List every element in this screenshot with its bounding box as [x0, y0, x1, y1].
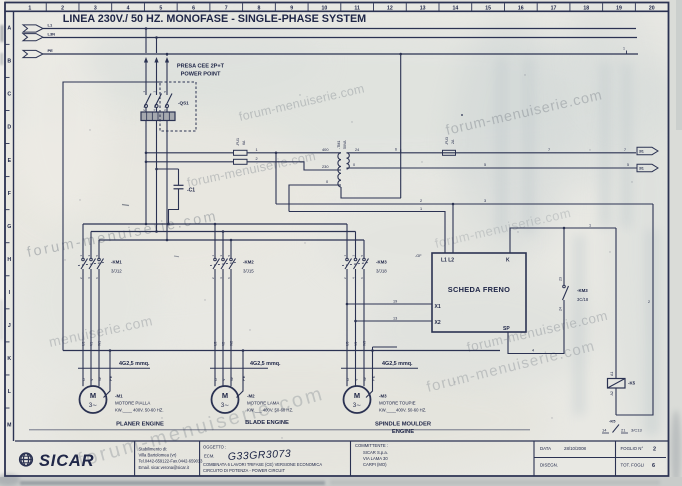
svg-text:14: 14 — [602, 428, 607, 433]
svg-text:-FU1: -FU1 — [236, 138, 240, 146]
svg-text:-FU3: -FU3 — [445, 137, 449, 145]
svg-text:2: 2 — [653, 447, 656, 453]
svg-text:SCHEDA FRENO: SCHEDA FRENO — [448, 285, 510, 294]
svg-text:POWER POINT: POWER POINT — [181, 72, 221, 78]
svg-text:6: 6 — [652, 463, 655, 469]
svg-text:U3: U3 — [346, 342, 350, 346]
svg-text:Villa Bartolomea (vr): Villa Bartolomea (vr) — [139, 453, 177, 458]
svg-text:2A: 2A — [451, 139, 455, 144]
svg-text:OGGETTO :: OGGETTO : — [203, 445, 226, 450]
svg-text:SP: SP — [503, 326, 510, 332]
svg-text:16: 16 — [518, 5, 524, 11]
svg-text:LINEA 230V./ 50 HZ. MONOFASE -: LINEA 230V./ 50 HZ. MONOFASE - SINGLE-PH… — [63, 13, 366, 25]
svg-text:W: W — [97, 377, 102, 381]
svg-text:PE: PE — [370, 375, 375, 381]
svg-text:V: V — [353, 378, 358, 381]
svg-text:PRESA CEE 2P+T: PRESA CEE 2P+T — [177, 64, 225, 70]
svg-text:G: G — [7, 224, 11, 230]
svg-text:50VA: 50VA — [343, 140, 347, 149]
svg-text:3∼: 3∼ — [89, 403, 97, 409]
svg-text:8: 8 — [258, 5, 261, 11]
svg-text:VIA LAMA 30: VIA LAMA 30 — [363, 456, 388, 461]
svg-text:L1: L1 — [48, 23, 53, 28]
svg-text:230: 230 — [322, 164, 329, 169]
svg-text:1: 1 — [256, 148, 258, 152]
svg-text:28/10/2008: 28/10/2008 — [564, 446, 587, 451]
svg-text:Tel.0442-659122-Fax.0442-65901: Tel.0442-659122-Fax.0442-659013 — [139, 459, 204, 464]
svg-text:W2: W2 — [230, 341, 234, 346]
svg-text:7: 7 — [624, 148, 626, 152]
svg-text:PE: PE — [108, 375, 113, 381]
svg-text:9: 9 — [290, 5, 293, 11]
svg-text:18: 18 — [583, 5, 589, 11]
svg-text:MOTORE TOUPIE: MOTORE TOUPIE — [379, 401, 416, 406]
svg-text:6A: 6A — [242, 140, 246, 145]
svg-text:-KM3: -KM3 — [577, 288, 588, 293]
svg-text:-GF: -GF — [415, 254, 422, 258]
svg-text:J: J — [8, 323, 11, 329]
svg-text:U: U — [345, 378, 350, 381]
svg-text:PE: PE — [48, 48, 54, 53]
svg-text:-KM3: -KM3 — [376, 260, 387, 265]
svg-text:CIRCUITO DI POTENZA - POWER CI: CIRCUITO DI POTENZA - POWER CIRCUIT — [203, 468, 286, 473]
svg-text:3: 3 — [484, 199, 486, 203]
svg-text:V2: V2 — [222, 342, 226, 346]
svg-text:2: 2 — [256, 157, 258, 161]
svg-text:2: 2 — [61, 5, 64, 11]
svg-text:C: C — [7, 92, 11, 98]
svg-text:DATA: DATA — [540, 446, 551, 451]
svg-text:1: 1 — [589, 223, 591, 227]
svg-text:19: 19 — [393, 299, 397, 303]
svg-text:W: W — [362, 377, 367, 381]
svg-text:V: V — [89, 378, 94, 381]
svg-text:M: M — [354, 391, 360, 400]
svg-text:24: 24 — [559, 307, 563, 311]
svg-text:PE: PE — [241, 375, 246, 381]
svg-text:21: 21 — [621, 428, 626, 433]
svg-text:E: E — [8, 158, 12, 164]
svg-text:3/1: 3/1 — [639, 167, 644, 171]
svg-text:V1: V1 — [90, 342, 94, 346]
svg-text:ECM.: ECM. — [204, 454, 214, 459]
svg-text:3/C13: 3/C13 — [631, 428, 642, 433]
svg-text:-K5: -K5 — [628, 381, 636, 386]
svg-text:0: 0 — [353, 163, 355, 167]
svg-text:A2: A2 — [610, 391, 614, 395]
svg-text:17: 17 — [551, 5, 557, 11]
svg-text:CARPI (MO): CARPI (MO) — [363, 462, 387, 467]
svg-text:A1: A1 — [610, 372, 614, 376]
svg-text:SICAR S.p.a.: SICAR S.p.a. — [363, 450, 388, 455]
svg-text:400: 400 — [322, 147, 329, 152]
svg-text:11: 11 — [354, 5, 360, 11]
svg-text:15: 15 — [485, 5, 491, 11]
svg-text:-M1: -M1 — [115, 394, 123, 399]
svg-text:PLANER ENGINE: PLANER ENGINE — [116, 422, 164, 428]
svg-text:6: 6 — [395, 148, 397, 152]
svg-text:W: W — [229, 377, 234, 381]
svg-text:H: H — [7, 257, 11, 263]
svg-text:L1 L2: L1 L2 — [441, 258, 454, 264]
svg-text:KW.____ 400V. 50-60 HZ.: KW.____ 400V. 50-60 HZ. — [115, 408, 164, 413]
svg-text:5: 5 — [484, 163, 486, 167]
svg-text:13: 13 — [393, 316, 397, 320]
svg-text:SICAR: SICAR — [39, 452, 94, 470]
svg-text:1: 1 — [420, 207, 422, 211]
svg-text:-TM1: -TM1 — [337, 141, 341, 149]
svg-text:13: 13 — [420, 5, 426, 11]
svg-text:X1: X1 — [435, 304, 441, 310]
svg-text:24: 24 — [355, 148, 359, 152]
svg-text:MOTORE LAMA: MOTORE LAMA — [247, 401, 279, 406]
svg-text:3C/18: 3C/18 — [577, 297, 589, 302]
svg-text:5: 5 — [627, 163, 629, 167]
svg-text:3/1: 3/1 — [639, 150, 644, 154]
svg-text:10: 10 — [322, 5, 328, 11]
svg-text:19: 19 — [616, 5, 622, 11]
svg-text:3/J12: 3/J12 — [111, 269, 122, 274]
svg-text:K: K — [7, 356, 11, 362]
svg-text:BLADE ENGINE: BLADE ENGINE — [245, 420, 289, 426]
svg-text:1: 1 — [623, 47, 625, 51]
svg-text:3∼: 3∼ — [221, 403, 229, 409]
svg-text:6: 6 — [192, 5, 195, 11]
svg-text:2: 2 — [420, 199, 422, 203]
svg-text:TOT. FOGLI: TOT. FOGLI — [621, 463, 645, 468]
svg-text:ENGINE: ENGINE — [392, 429, 414, 435]
svg-text:V3: V3 — [354, 342, 358, 346]
svg-text:KW.____400V. 50-60 HZ.: KW.____400V. 50-60 HZ. — [379, 408, 426, 413]
svg-text:7: 7 — [225, 5, 228, 11]
svg-text:-KM2: -KM2 — [243, 260, 254, 265]
svg-text:14: 14 — [452, 5, 458, 11]
svg-text:3/J15: 3/J15 — [243, 269, 254, 274]
svg-text:KW.___ 400V. 50-60 HZ.: KW.___ 400V. 50-60 HZ. — [247, 408, 293, 413]
svg-text:3/J18: 3/J18 — [376, 269, 387, 274]
svg-text:Email. sicar.verona@sicar.it: Email. sicar.verona@sicar.it — [139, 465, 190, 470]
svg-text:COMMITTENTE :: COMMITTENTE : — [355, 443, 388, 448]
svg-text:B: B — [7, 59, 11, 65]
svg-text:DISEGN.: DISEGN. — [540, 463, 558, 468]
svg-text:-KM1: -KM1 — [111, 260, 122, 265]
svg-text:X2: X2 — [435, 320, 441, 326]
svg-text:12: 12 — [387, 5, 393, 11]
svg-text:U1: U1 — [82, 342, 86, 346]
svg-text:-M3: -M3 — [379, 394, 387, 399]
svg-text:SPINDLE MOULDER: SPINDLE MOULDER — [375, 422, 432, 428]
svg-text:2: 2 — [648, 300, 650, 304]
svg-text:-K5: -K5 — [609, 419, 616, 424]
svg-text:A: A — [7, 26, 11, 32]
svg-text:4G2,5 mmq.: 4G2,5 mmq. — [250, 361, 281, 367]
svg-text:W1: W1 — [98, 341, 102, 346]
svg-text:4G2,5 mmq.: 4G2,5 mmq. — [382, 361, 413, 367]
svg-text:U: U — [213, 378, 218, 381]
svg-text:7: 7 — [548, 148, 550, 152]
svg-text:-QS1: -QS1 — [178, 101, 189, 106]
svg-text:4: 4 — [532, 349, 534, 353]
svg-text:M: M — [222, 391, 228, 400]
svg-text:-M2: -M2 — [247, 394, 255, 399]
svg-text:MOTORE PIALLA: MOTORE PIALLA — [115, 401, 150, 406]
svg-text:3: 3 — [94, 5, 97, 11]
svg-text:U2: U2 — [214, 342, 218, 346]
svg-text:D: D — [7, 125, 11, 131]
svg-text:L3N: L3N — [48, 32, 56, 37]
svg-text:K: K — [506, 258, 510, 264]
svg-text:COMBINATA 6 LAVORI TRIFASE (CE: COMBINATA 6 LAVORI TRIFASE (CE) VERSIONE… — [203, 462, 322, 467]
svg-text:U: U — [81, 378, 86, 381]
svg-text:4: 4 — [127, 5, 130, 11]
svg-text:5: 5 — [159, 5, 162, 11]
svg-text:-C1: -C1 — [187, 188, 195, 194]
svg-text:M: M — [90, 391, 96, 400]
svg-text:4G2,5 mmq.: 4G2,5 mmq. — [119, 361, 150, 367]
svg-text:20: 20 — [649, 5, 655, 11]
svg-text:M: M — [7, 422, 11, 428]
svg-text:3∼: 3∼ — [353, 403, 361, 409]
svg-text:V: V — [221, 378, 226, 381]
svg-text:F: F — [8, 191, 11, 197]
svg-text:1: 1 — [28, 5, 31, 11]
svg-text:W3: W3 — [363, 341, 367, 346]
svg-text:Stabilimento di:: Stabilimento di: — [139, 447, 168, 452]
svg-text:23: 23 — [559, 277, 563, 281]
svg-text:FOGLIO N°: FOGLIO N° — [621, 446, 644, 451]
